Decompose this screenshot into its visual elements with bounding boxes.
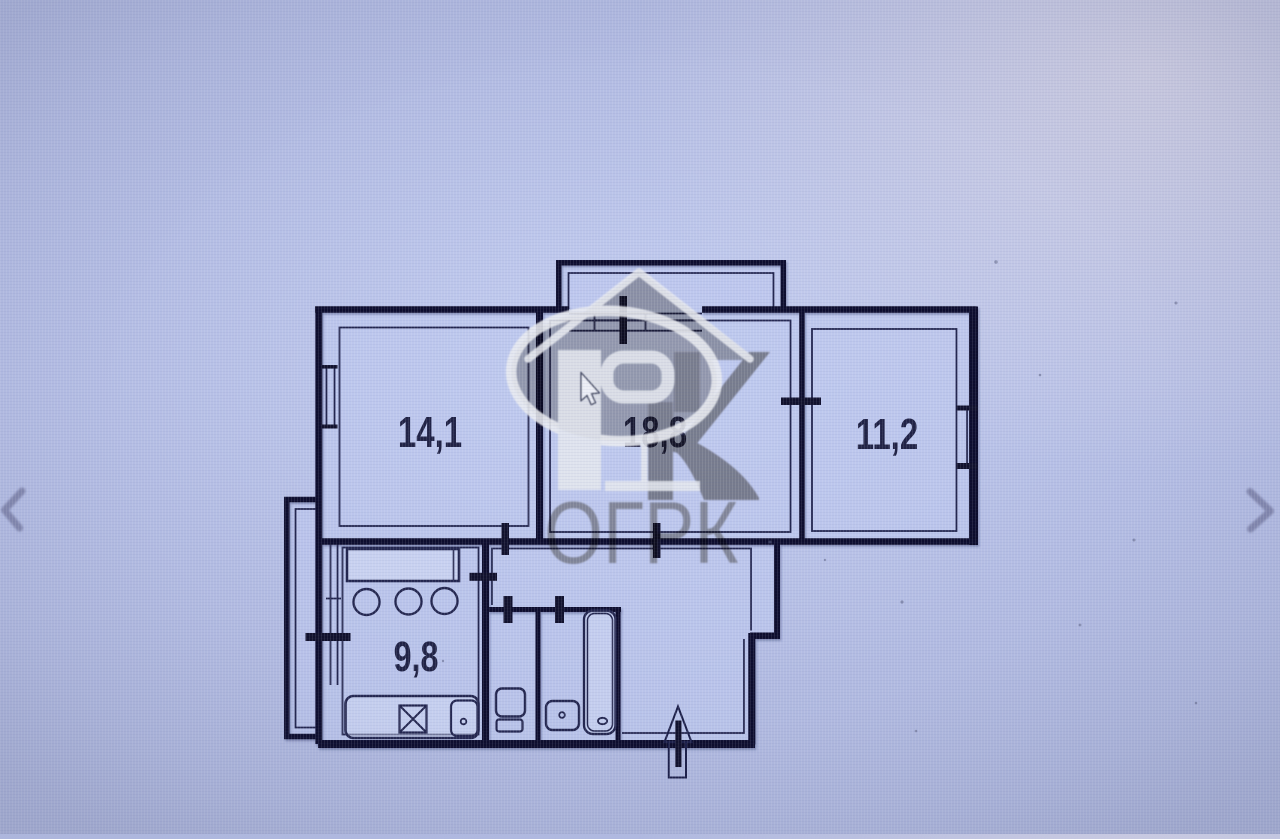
svg-text:9,8: 9,8 — [394, 634, 439, 682]
svg-text:ОГРК: ОГРК — [544, 485, 739, 583]
svg-text:11,2: 11,2 — [856, 411, 918, 460]
svg-text:14,1: 14,1 — [398, 409, 462, 458]
